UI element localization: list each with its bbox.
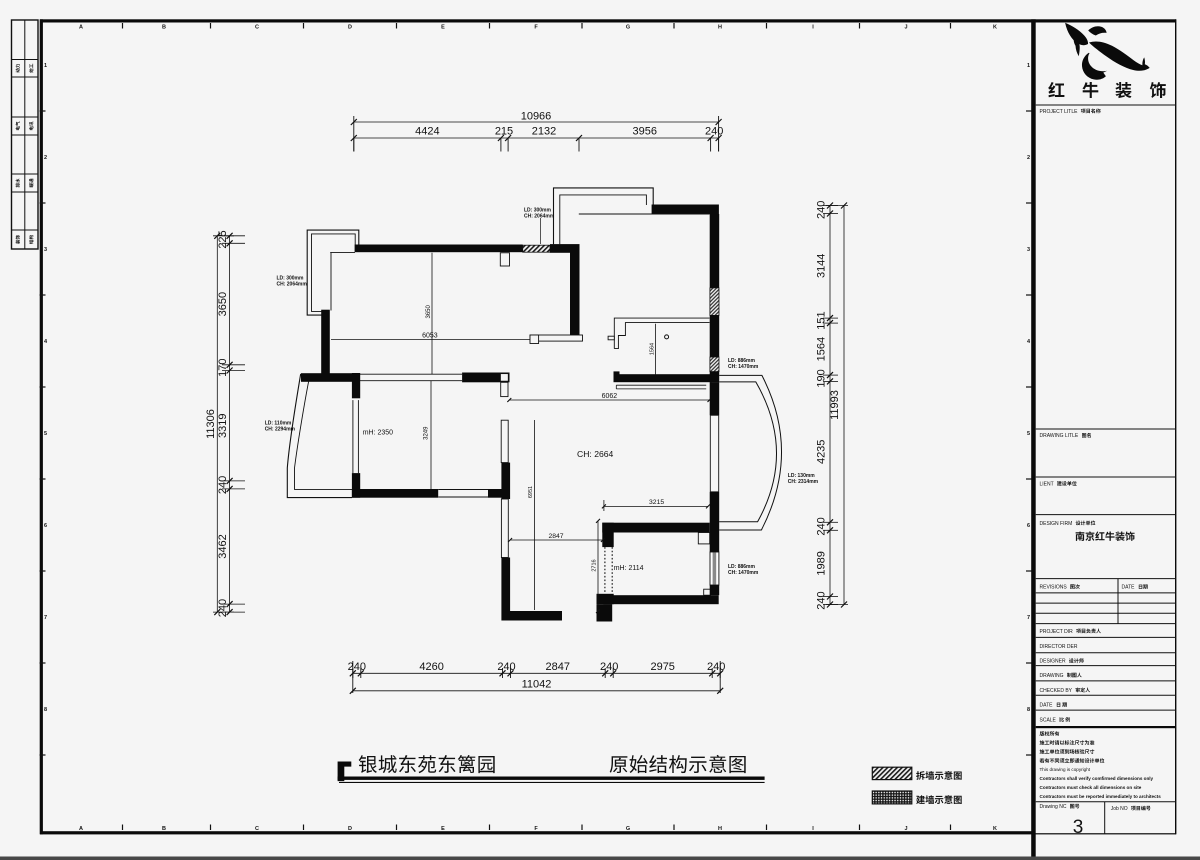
- svg-text:3650: 3650: [426, 304, 432, 318]
- svg-text:11306: 11306: [205, 409, 217, 439]
- svg-text:This drawing is copyright: This drawing is copyright: [1040, 767, 1091, 772]
- svg-text:10966: 10966: [521, 111, 552, 123]
- svg-text:2: 2: [1027, 155, 1030, 161]
- svg-text:Contractors shall verify comfi: Contractors shall verify comfirmed dimen…: [1040, 776, 1154, 781]
- svg-text:5: 5: [1027, 431, 1030, 437]
- svg-text:REVISIONS: REVISIONS: [1040, 585, 1068, 591]
- svg-text:240: 240: [815, 517, 827, 535]
- svg-text:4260: 4260: [419, 661, 443, 673]
- svg-text:A: A: [79, 826, 83, 832]
- svg-text:K: K: [993, 826, 997, 832]
- svg-text:170: 170: [217, 359, 229, 377]
- svg-text:Job NO: Job NO: [1111, 806, 1128, 812]
- svg-text:2: 2: [44, 155, 47, 161]
- svg-text:G: G: [626, 826, 630, 832]
- svg-text:DATE: DATE: [1040, 703, 1054, 709]
- svg-text:2847: 2847: [548, 533, 563, 540]
- svg-text:CH: 2314mm: CH: 2314mm: [788, 479, 819, 485]
- svg-text:H: H: [718, 826, 722, 832]
- svg-text:5: 5: [44, 431, 47, 437]
- svg-text:1: 1: [1027, 63, 1030, 69]
- svg-text:D: D: [348, 826, 352, 832]
- svg-text:2847: 2847: [546, 661, 570, 673]
- svg-text:CH: 1470mm: CH: 1470mm: [728, 570, 759, 576]
- svg-text:mH: 2350: mH: 2350: [363, 429, 393, 436]
- svg-text:240: 240: [348, 661, 366, 673]
- svg-text:CH: 1470mm: CH: 1470mm: [728, 364, 759, 370]
- svg-text:11042: 11042: [522, 679, 552, 691]
- svg-text:G: G: [626, 25, 630, 31]
- svg-text:215: 215: [495, 126, 513, 138]
- svg-text:11993: 11993: [829, 390, 841, 420]
- svg-text:PROJECT LITLE: PROJECT LITLE: [1040, 109, 1079, 115]
- svg-text:240: 240: [815, 591, 827, 609]
- svg-text:CH: 2294mm: CH: 2294mm: [265, 427, 296, 433]
- svg-text:1564: 1564: [649, 343, 655, 355]
- svg-text:8: 8: [1027, 707, 1030, 713]
- svg-text:DATE: DATE: [1122, 585, 1136, 591]
- svg-text:E: E: [441, 826, 445, 832]
- svg-text:8: 8: [44, 707, 47, 713]
- svg-text:PROJECT DIR: PROJECT DIR: [1040, 629, 1074, 635]
- svg-text:DESIGN FIRM: DESIGN FIRM: [1040, 521, 1073, 527]
- svg-text:1: 1: [44, 63, 47, 69]
- svg-text:Contractors must be reported i: Contractors must be reported immediately…: [1040, 794, 1162, 799]
- svg-text:3: 3: [1027, 247, 1030, 253]
- svg-text:3215: 3215: [649, 499, 664, 506]
- svg-text:K: K: [993, 25, 997, 31]
- svg-text:240: 240: [705, 126, 723, 138]
- svg-text:LIENT: LIENT: [1040, 481, 1054, 487]
- svg-text:Contractors must check all dim: Contractors must check all dimensions on…: [1040, 785, 1142, 790]
- svg-text:J: J: [904, 25, 907, 31]
- svg-text:Drawing NC: Drawing NC: [1040, 804, 1067, 810]
- svg-text:D: D: [348, 25, 352, 31]
- svg-text:2975: 2975: [650, 661, 674, 673]
- svg-text:DRAWING LITLE: DRAWING LITLE: [1040, 433, 1079, 439]
- svg-text:240: 240: [217, 599, 229, 617]
- svg-text:3249: 3249: [424, 426, 430, 440]
- svg-text:3650: 3650: [217, 292, 229, 316]
- svg-text:6951: 6951: [528, 486, 534, 498]
- svg-text:DRAWING: DRAWING: [1040, 673, 1064, 679]
- svg-text:J: J: [904, 826, 907, 832]
- svg-text:3462: 3462: [217, 534, 229, 558]
- svg-text:DESIGNER: DESIGNER: [1040, 659, 1067, 665]
- svg-text:3144: 3144: [815, 254, 827, 278]
- svg-text:190: 190: [815, 369, 827, 387]
- svg-text:C: C: [255, 826, 259, 832]
- svg-text:2716: 2716: [592, 559, 598, 571]
- svg-text:4235: 4235: [815, 440, 827, 464]
- svg-text:6: 6: [1027, 523, 1030, 529]
- svg-text:CH: 2064mm: CH: 2064mm: [524, 214, 555, 220]
- svg-text:3956: 3956: [633, 126, 657, 138]
- svg-text:2132: 2132: [532, 126, 556, 138]
- svg-text:CH: 2664: CH: 2664: [577, 449, 614, 459]
- svg-text:240: 240: [707, 661, 725, 673]
- svg-text:240: 240: [600, 661, 618, 673]
- svg-text:CHECKED BY: CHECKED BY: [1040, 688, 1073, 694]
- svg-text:mH: 2114: mH: 2114: [614, 565, 644, 572]
- svg-text:225: 225: [217, 230, 229, 248]
- svg-text:7: 7: [44, 615, 47, 621]
- svg-text:240: 240: [497, 661, 515, 673]
- svg-text:B: B: [162, 25, 166, 31]
- svg-text:3319: 3319: [217, 413, 229, 437]
- svg-text:C: C: [255, 25, 259, 31]
- svg-text:SCALE: SCALE: [1040, 717, 1057, 723]
- svg-text:3: 3: [1073, 817, 1084, 838]
- svg-text:3: 3: [44, 247, 47, 253]
- svg-text:1564: 1564: [815, 337, 827, 361]
- svg-text:1989: 1989: [815, 551, 827, 575]
- svg-text:4424: 4424: [415, 126, 439, 138]
- svg-text:151: 151: [815, 311, 827, 329]
- svg-text:240: 240: [217, 476, 229, 494]
- svg-text:E: E: [441, 25, 445, 31]
- svg-text:7: 7: [1027, 615, 1030, 621]
- svg-text:240: 240: [815, 201, 827, 219]
- svg-text:A: A: [79, 25, 83, 31]
- svg-text:DIRECTOR DER: DIRECTOR DER: [1040, 644, 1078, 650]
- svg-text:H: H: [718, 25, 722, 31]
- svg-text:B: B: [162, 826, 166, 832]
- svg-text:6062: 6062: [602, 393, 618, 400]
- svg-text:CH: 2064mm: CH: 2064mm: [277, 282, 308, 288]
- svg-text:6: 6: [44, 523, 47, 529]
- svg-text:6053: 6053: [422, 332, 438, 339]
